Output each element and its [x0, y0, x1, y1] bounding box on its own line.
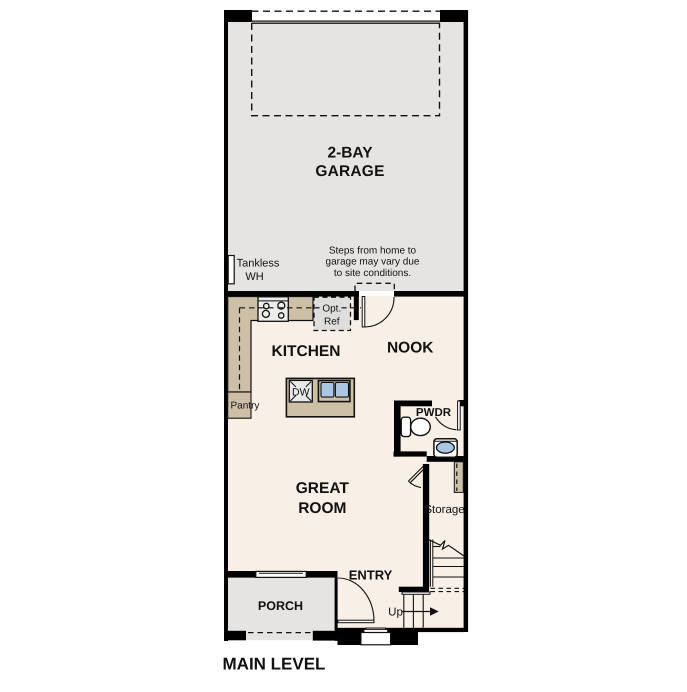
- svg-text:Storage: Storage: [424, 504, 464, 516]
- svg-text:KITCHEN: KITCHEN: [272, 343, 341, 360]
- svg-text:garage may vary due: garage may vary due: [326, 257, 420, 268]
- svg-text:PWDR: PWDR: [416, 407, 452, 419]
- svg-text:Steps from home to: Steps from home to: [329, 246, 417, 257]
- svg-text:ROOM: ROOM: [298, 500, 346, 517]
- svg-text:to site conditions.: to site conditions.: [334, 268, 411, 279]
- svg-text:Tankless: Tankless: [237, 258, 280, 270]
- svg-text:Opt.: Opt.: [322, 303, 341, 314]
- svg-text:DW: DW: [292, 386, 310, 398]
- svg-text:NOOK: NOOK: [387, 340, 434, 357]
- svg-text:WH: WH: [245, 271, 263, 283]
- svg-text:Pantry: Pantry: [231, 401, 260, 412]
- svg-text:PORCH: PORCH: [258, 599, 303, 613]
- svg-text:Up: Up: [388, 606, 403, 618]
- svg-text:Ref: Ref: [324, 316, 340, 327]
- svg-text:MAIN LEVEL: MAIN LEVEL: [223, 655, 326, 674]
- svg-text:GARAGE: GARAGE: [315, 163, 384, 180]
- svg-text:2-BAY: 2-BAY: [327, 145, 373, 162]
- svg-text:ENTRY: ENTRY: [349, 567, 393, 582]
- svg-text:GREAT: GREAT: [296, 480, 350, 497]
